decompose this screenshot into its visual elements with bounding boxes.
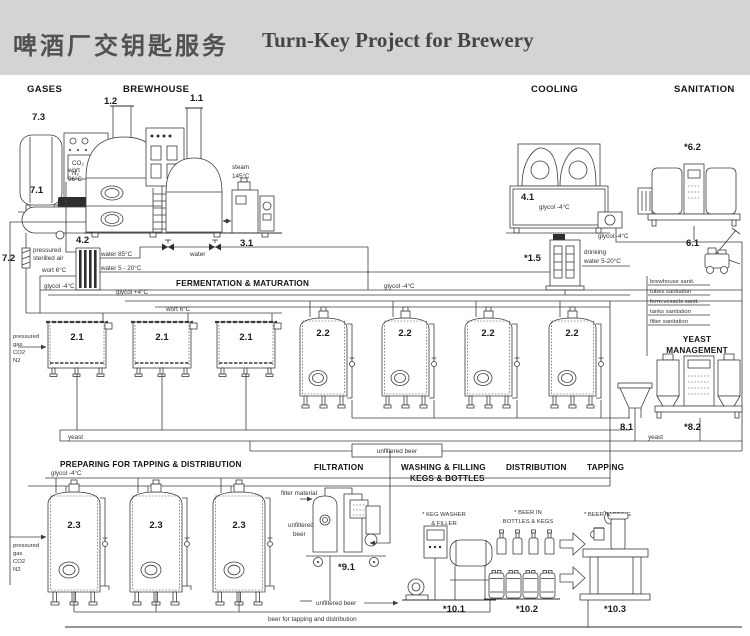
keg-washer-number: *10.1 <box>443 604 466 615</box>
serving-tank-number: 2.3 <box>232 520 245 531</box>
open-fermenter-1 <box>46 322 112 377</box>
brew-kettle-number: 1.1 <box>190 93 204 104</box>
brewery-diagram-page: 啤酒厂交钥匙服务 Turn-Key Project for Brewery <box>0 0 750 636</box>
gas-station-number: 7.3 <box>32 112 45 123</box>
wort-cold-pipe <box>40 276 76 313</box>
section-filtration: FILTRATION <box>314 463 363 472</box>
water-hot-label: water 85°C <box>100 250 133 258</box>
chiller-glycol-label: glycol -4°C <box>539 203 570 211</box>
glycol-serving-label: glycol -4°C <box>51 469 82 477</box>
beer-packages-number: *10.2 <box>516 604 538 615</box>
section-washing-line1: WASHING & FILLING <box>401 463 486 472</box>
lager-tank-number: 2.2 <box>565 328 578 339</box>
lager-tank-4 <box>549 307 604 408</box>
section-cooling: COOLING <box>531 84 578 95</box>
lager-tank-1 <box>300 307 355 408</box>
gas-mid-label3: CO2 <box>13 350 25 356</box>
unfiltered-beer-label: unfiltered beer <box>377 448 417 455</box>
steam-generator-hood <box>238 182 250 190</box>
gas-bottom-label4: N2 <box>13 567 21 573</box>
drinking-water-label2: water 5-20°C <box>583 257 621 265</box>
wort-cold-label: wort 6°C <box>41 266 67 274</box>
sanitation-checklist: brewhouse sanit. tubes sanitation ferm.v… <box>648 279 710 325</box>
chiller-number: 4.1 <box>521 192 535 203</box>
serving-tank-number: 2.3 <box>149 520 162 531</box>
drinking-water-label1: drinking <box>584 249 607 256</box>
beer-in-label2: BOTTLES & KEGS <box>503 519 553 525</box>
wort-hot-label1: wort <box>67 167 80 174</box>
gas-bottom-label3: CO2 <box>13 559 25 565</box>
wort-hot-label2: 96°C <box>68 175 83 183</box>
water-label: water <box>189 251 205 258</box>
glycol-right-label: glycol -4°C <box>598 232 629 240</box>
mobile-cleaner <box>705 228 740 274</box>
open-fermenter-number: 2.1 <box>155 332 169 343</box>
open-fermenter-number: 2.1 <box>239 332 253 343</box>
washing-section: * KEG WASHER & FILLER * BEER IN BOTTLES … <box>402 510 650 627</box>
section-distribution: DISTRIBUTION <box>506 463 567 472</box>
beer-packages <box>484 530 560 599</box>
distribution-arrow-top <box>560 533 585 555</box>
glycol-minus-label: glycol -4°C <box>44 282 75 290</box>
section-yeast-line1: YEAST <box>683 335 711 344</box>
lager-tank-number: 2.2 <box>316 328 329 339</box>
yeast-label-right: yeast <box>648 434 663 441</box>
air-filter-number: 7.2 <box>2 253 15 264</box>
section-washing-line2: KEGS & BOTTLES <box>410 474 485 483</box>
gas-co2-label: CO₂ <box>72 160 84 167</box>
filter-material-label: filter material <box>281 490 317 497</box>
filtration-section: filter material *9.1 unfiltered beer <box>281 451 398 607</box>
serving-tank-number: 2.3 <box>67 520 80 531</box>
beer-for-tapping-label: beer for tapping and distribution <box>268 616 357 623</box>
lager-tank-3 <box>465 307 520 408</box>
distribution-arrow-bottom <box>560 567 585 589</box>
beer-tap-number: *10.3 <box>604 604 626 615</box>
sanitation-item: filter sanitation <box>650 319 688 325</box>
lager-tank-number: 2.2 <box>481 328 494 339</box>
sanitation-item: ferm.vessels sanit. <box>650 299 699 305</box>
gas-mid-label1: pressured <box>13 334 39 340</box>
keg-washer-unit <box>402 526 496 600</box>
beer-in-label1: * BEER IN <box>514 510 542 516</box>
yeast-label-left: yeast <box>68 434 83 441</box>
section-sanitation: SANITATION <box>674 84 735 95</box>
section-yeast-line2: MANAGEMENT <box>666 346 728 355</box>
air-filter <box>22 248 30 268</box>
compressor-motor <box>58 197 90 207</box>
glycol-plus-label: glycol +4°C <box>116 288 149 296</box>
open-fermenter-number: 2.1 <box>70 332 84 343</box>
sanitation-section: *6.2 6.1 <box>638 142 740 356</box>
keg-washer-label1: * KEG WASHER <box>422 512 466 518</box>
gas-bottom-label1: pressured <box>13 543 39 549</box>
section-tapping: TAPPING <box>587 463 624 472</box>
compressor-number: 7.1 <box>30 185 44 196</box>
serving-tank-2 <box>130 480 191 605</box>
section-fermentation: FERMENTATION & MATURATION <box>176 279 309 288</box>
chimney-right <box>187 108 201 160</box>
steam-generator-panel <box>260 196 274 231</box>
cip-number: *6.2 <box>684 142 701 153</box>
wort-cooler <box>76 248 100 290</box>
unfiltered-beer2-line2: beer <box>293 531 306 538</box>
section-gases: GASES <box>27 84 62 95</box>
unfiltered-beer2-line1: unfiltered <box>288 522 314 529</box>
gas-mid-label4: N2 <box>13 358 21 364</box>
beer-filter-unit <box>306 488 386 567</box>
lager-tank-number: 2.2 <box>398 328 411 339</box>
fermentation-section: glycol -4°C glycol +4°C glycol -4°C wort… <box>26 282 742 457</box>
mobile-cleaner-number: 6.1 <box>686 238 700 249</box>
air-label-line2: sterilled air <box>33 255 63 262</box>
air-label-line1: pressured <box>33 247 61 254</box>
yeast-collector-number: 8.1 <box>620 422 634 433</box>
unfiltered-beer-bottom-label: unfiltered beer <box>316 600 356 607</box>
water-treatment-number: *1.5 <box>524 253 542 264</box>
mash-tun-number: 1.2 <box>104 96 117 107</box>
glycol-pump <box>598 212 622 228</box>
yeast-management-section: *8.2 <box>655 354 742 441</box>
serving-tank-1 <box>48 480 109 605</box>
open-fermenter-2 <box>131 322 197 377</box>
wort-ferm-label: wort 6°C <box>165 305 191 313</box>
brew-kettle-vessel <box>166 158 222 232</box>
chiller-fan-housing <box>518 144 600 186</box>
section-brewhouse: BREWHOUSE <box>123 84 189 95</box>
sanitation-item: tanks sanitation <box>650 309 691 315</box>
yeast-management-number: *8.2 <box>684 422 701 433</box>
chimney-left <box>113 106 131 138</box>
water-cold-label: water 5 - 20°C <box>100 264 142 272</box>
gas-bottom-label2: gas <box>13 551 23 557</box>
steam-label-line1: steam <box>232 164 249 171</box>
gas-mid-label2: gas <box>13 342 23 348</box>
water-treatment-unit <box>546 234 584 295</box>
heat-exchanger-number: 4.2 <box>76 235 89 246</box>
glycol-ferm-label: glycol -4°C <box>384 282 415 290</box>
serving-tank-3 <box>213 480 274 605</box>
cip-station <box>638 164 740 226</box>
lager-tank-2 <box>382 307 437 408</box>
section-preparing: PREPARING FOR TAPPING & DISTRIBUTION <box>60 460 242 469</box>
process-diagram: GASES BREWHOUSE COOLING SANITATION FERME… <box>0 0 750 636</box>
sanitation-item: brewhouse sanit. <box>650 279 695 285</box>
open-fermenter-3 <box>215 322 281 377</box>
beer-filter-number: *9.1 <box>338 562 356 573</box>
